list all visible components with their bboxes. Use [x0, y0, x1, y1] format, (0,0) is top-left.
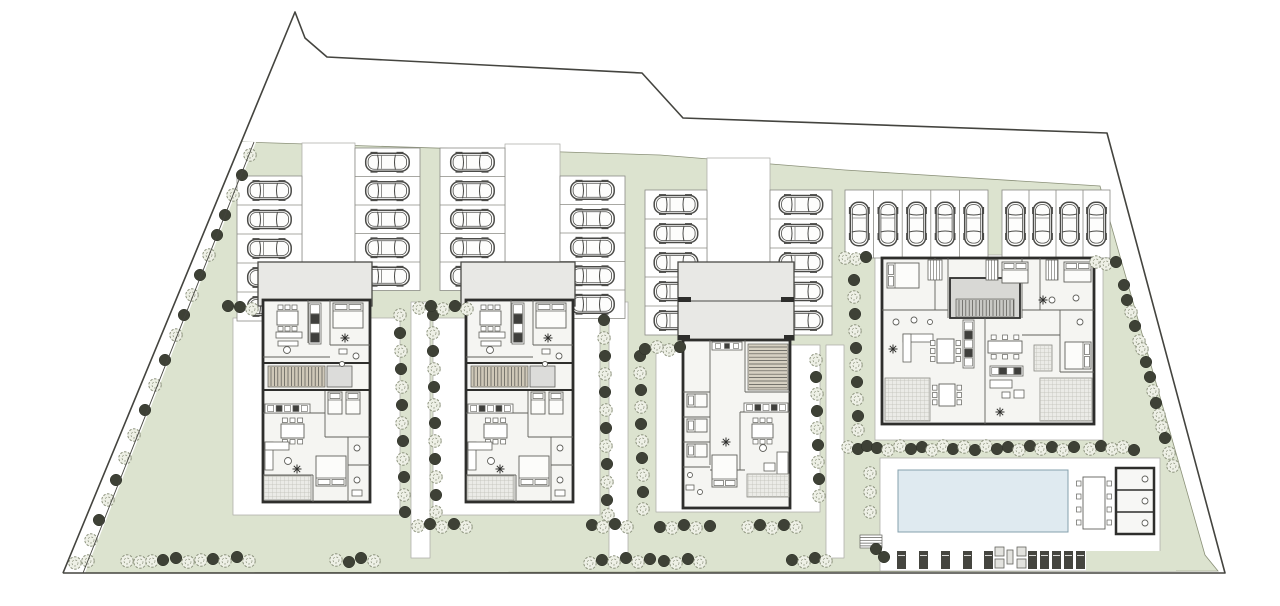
tree: [666, 522, 678, 534]
tree: [620, 552, 632, 564]
tree: [1046, 441, 1058, 453]
tree: [682, 553, 694, 565]
swimming-pool: [898, 470, 1068, 532]
tree: [810, 354, 822, 366]
car-icon: [571, 265, 615, 286]
tree: [157, 554, 169, 566]
tree: [849, 325, 861, 337]
tree: [1024, 440, 1036, 452]
tree: [1117, 441, 1129, 453]
tree: [448, 518, 460, 530]
paved-area: [826, 345, 844, 558]
tree: [861, 440, 873, 452]
tree: [355, 552, 367, 564]
tree: [1068, 441, 1080, 453]
tree: [424, 518, 436, 530]
patio-furniture: [1017, 547, 1026, 556]
building-2: [466, 300, 573, 502]
tree: [596, 554, 608, 566]
tree: [1106, 443, 1118, 455]
patio-furniture: [995, 559, 1004, 568]
tree: [231, 551, 243, 563]
tree: [820, 555, 832, 567]
tree: [637, 469, 649, 481]
tree: [599, 386, 611, 398]
tree: [991, 443, 1003, 455]
tree: [430, 506, 442, 518]
tree: [778, 519, 790, 531]
tree: [742, 521, 754, 533]
tree: [1150, 397, 1162, 409]
tree: [812, 456, 824, 468]
paved-area: [302, 143, 355, 263]
car-icon: [248, 209, 292, 230]
tree: [69, 557, 81, 569]
parking-stall-row: [1002, 190, 1110, 258]
building-3: [683, 340, 790, 508]
tree: [860, 251, 872, 263]
tree: [330, 554, 342, 566]
building-4: [882, 258, 1094, 424]
tree: [437, 303, 449, 315]
tree: [849, 308, 861, 320]
tree: [651, 341, 663, 353]
tree: [128, 429, 140, 441]
tree: [368, 555, 380, 567]
tree: [1125, 306, 1137, 318]
tree: [811, 388, 823, 400]
tree: [412, 520, 424, 532]
patio-furniture: [1007, 550, 1013, 564]
tree: [427, 345, 439, 357]
patio-furniture: [995, 547, 1004, 556]
tree: [1147, 385, 1159, 397]
tree: [634, 367, 646, 379]
car-icon: [654, 223, 698, 244]
tree: [85, 534, 97, 546]
tree: [809, 552, 821, 564]
tree: [396, 399, 408, 411]
car-icon: [906, 202, 927, 246]
tree: [852, 424, 864, 436]
tree: [243, 555, 255, 567]
tree: [790, 521, 802, 533]
car-icon: [571, 294, 615, 315]
tree: [852, 410, 864, 422]
tree: [864, 486, 876, 498]
tree: [121, 555, 133, 567]
tree: [598, 314, 610, 326]
tree: [449, 300, 461, 312]
tree: [146, 555, 158, 567]
car-icon: [779, 194, 823, 215]
tree: [398, 489, 410, 501]
tree: [425, 300, 437, 312]
tree: [1035, 443, 1047, 455]
tree: [608, 556, 620, 568]
tree: [170, 552, 182, 564]
tree: [1167, 460, 1179, 472]
sun-lounger: [984, 551, 993, 569]
tree: [395, 363, 407, 375]
tree: [864, 506, 876, 518]
car-icon: [451, 152, 495, 173]
tree: [958, 441, 970, 453]
paved-area: [505, 144, 560, 263]
tree: [1084, 443, 1096, 455]
car-icon: [571, 208, 615, 229]
tree: [397, 453, 409, 465]
tree: [810, 371, 822, 383]
car-icon: [366, 237, 410, 258]
car-icon: [963, 202, 984, 246]
tree: [601, 494, 613, 506]
tree: [848, 291, 860, 303]
garage-structure: [678, 262, 794, 340]
tree: [754, 519, 766, 531]
tree: [635, 384, 647, 396]
car-icon: [654, 194, 698, 215]
car-icon: [248, 238, 292, 259]
car-icon: [366, 152, 410, 173]
tree: [813, 473, 825, 485]
tree: [1110, 256, 1122, 268]
tree: [851, 376, 863, 388]
tree: [811, 422, 823, 434]
tree: [601, 458, 613, 470]
tree: [134, 556, 146, 568]
sun-lounger: [919, 551, 928, 569]
tree: [343, 556, 355, 568]
tree: [586, 519, 598, 531]
sun-lounger: [1052, 551, 1061, 569]
tree: [182, 556, 194, 568]
tree: [428, 363, 440, 375]
tree: [195, 554, 207, 566]
tree: [882, 444, 894, 456]
tree: [1163, 447, 1175, 459]
tree: [786, 554, 798, 566]
sun-lounger: [1040, 551, 1049, 569]
tree: [600, 404, 612, 416]
car-icon: [935, 202, 956, 246]
car-icon: [366, 209, 410, 230]
tree: [460, 521, 472, 533]
tree: [413, 302, 425, 314]
tree: [850, 359, 862, 371]
tree: [584, 557, 596, 569]
tree: [813, 490, 825, 502]
site-plan-image: [0, 0, 1280, 606]
tree: [222, 300, 234, 312]
tree: [1121, 294, 1133, 306]
sun-lounger: [1028, 551, 1037, 569]
site-plan-svg: [0, 0, 1280, 606]
tree: [427, 327, 439, 339]
tree: [636, 435, 648, 447]
pool-house: [1116, 468, 1154, 534]
tree: [621, 521, 633, 533]
tree: [599, 350, 611, 362]
tree: [839, 252, 851, 264]
car-icon: [1005, 202, 1026, 246]
tree: [1156, 421, 1168, 433]
tree: [812, 439, 824, 451]
car-icon: [878, 202, 899, 246]
car-icon: [1086, 202, 1107, 246]
tree: [1118, 279, 1130, 291]
tree: [396, 381, 408, 393]
tree: [766, 522, 778, 534]
sun-lounger: [1064, 551, 1073, 569]
tree: [597, 521, 609, 533]
tree: [219, 555, 231, 567]
car-icon: [849, 202, 870, 246]
sun-lounger: [941, 551, 950, 569]
car-icon: [451, 237, 495, 258]
tree: [436, 521, 448, 533]
tree: [430, 489, 442, 501]
tree: [637, 486, 649, 498]
car-icon: [1032, 202, 1053, 246]
tree: [658, 555, 670, 567]
tree: [635, 418, 647, 430]
tree: [674, 341, 686, 353]
tree: [399, 506, 411, 518]
tree: [704, 520, 716, 532]
car-icon: [451, 180, 495, 201]
sun-lounger: [963, 551, 972, 569]
tree: [635, 401, 647, 413]
paved-area: [707, 158, 770, 263]
tree: [848, 274, 860, 286]
tree: [850, 342, 862, 354]
patio-furniture: [1017, 559, 1026, 568]
tree: [690, 522, 702, 534]
car-icon: [571, 237, 615, 258]
tree: [236, 169, 248, 181]
tree: [461, 303, 473, 315]
car-icon: [451, 209, 495, 230]
tree: [429, 435, 441, 447]
tree: [429, 417, 441, 429]
tree: [694, 556, 706, 568]
tree: [1002, 441, 1014, 453]
tree: [234, 301, 246, 313]
tree: [947, 443, 959, 455]
tree: [430, 471, 442, 483]
tree: [1095, 440, 1107, 452]
sun-lounger: [897, 551, 906, 569]
tree: [609, 518, 621, 530]
tree: [1144, 371, 1156, 383]
tree: [654, 521, 666, 533]
tree: [429, 453, 441, 465]
tree: [428, 399, 440, 411]
tree: [632, 556, 644, 568]
car-icon: [248, 180, 292, 201]
tree: [1140, 356, 1152, 368]
tree: [1129, 320, 1141, 332]
tree: [851, 393, 863, 405]
tree: [636, 452, 648, 464]
tree: [670, 557, 682, 569]
tree: [119, 452, 131, 464]
tree: [878, 551, 890, 563]
tree: [678, 519, 690, 531]
tree: [644, 553, 656, 565]
tree: [394, 327, 406, 339]
tree: [905, 443, 917, 455]
tree: [980, 440, 992, 452]
tree: [93, 514, 105, 526]
tree: [1057, 444, 1069, 456]
tree: [871, 442, 883, 454]
tree: [1128, 444, 1140, 456]
tree: [246, 303, 258, 315]
tree: [894, 440, 906, 452]
tree: [598, 332, 610, 344]
car-icon: [571, 180, 615, 201]
tree: [398, 471, 410, 483]
tree: [1159, 432, 1171, 444]
tree: [394, 309, 406, 321]
tree: [428, 381, 440, 393]
parking-stall-row: [845, 190, 988, 258]
tree: [798, 556, 810, 568]
tree: [637, 503, 649, 515]
tree: [1153, 409, 1165, 421]
sun-lounger: [1076, 551, 1085, 569]
tree: [397, 435, 409, 447]
tree: [864, 467, 876, 479]
car-icon: [779, 223, 823, 244]
tree: [926, 444, 938, 456]
tree: [601, 476, 613, 488]
tree: [1136, 343, 1148, 355]
tree: [395, 345, 407, 357]
tree: [663, 344, 675, 356]
tree: [1013, 444, 1025, 456]
tree: [639, 343, 651, 355]
tree: [600, 422, 612, 434]
tree: [396, 417, 408, 429]
tree: [600, 440, 612, 452]
tree: [244, 149, 256, 161]
car-icon: [1059, 202, 1080, 246]
tree: [811, 405, 823, 417]
tree: [969, 444, 981, 456]
car-icon: [366, 180, 410, 201]
tree: [599, 368, 611, 380]
tree: [207, 553, 219, 565]
building-1: [263, 300, 370, 502]
